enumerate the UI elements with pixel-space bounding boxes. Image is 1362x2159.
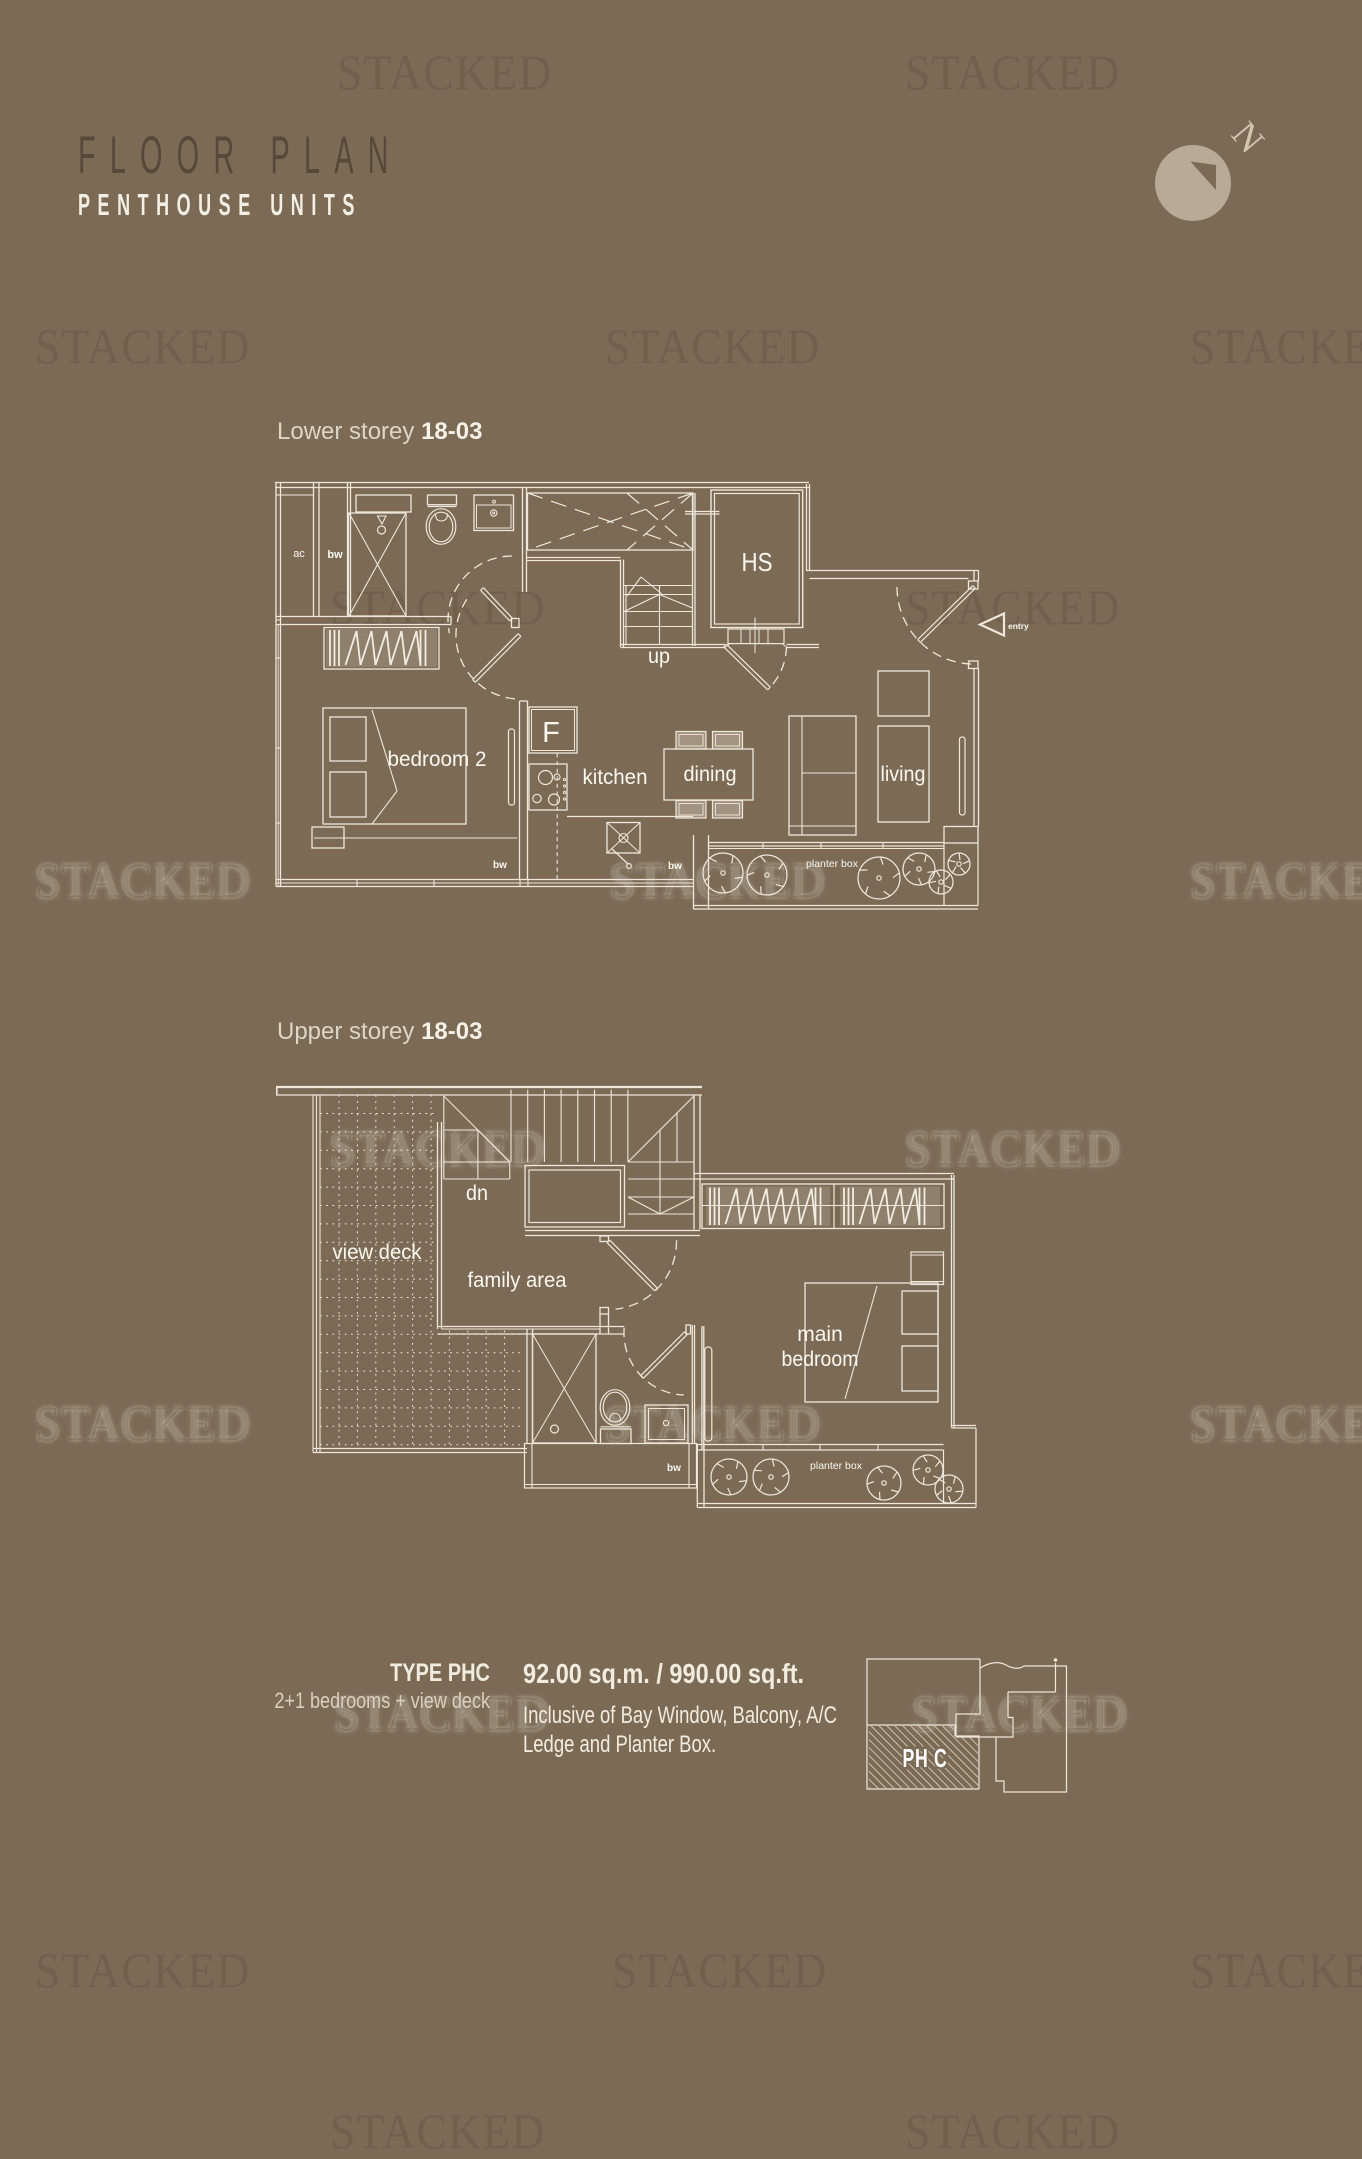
svg-text:PH C: PH C [903,1744,948,1773]
